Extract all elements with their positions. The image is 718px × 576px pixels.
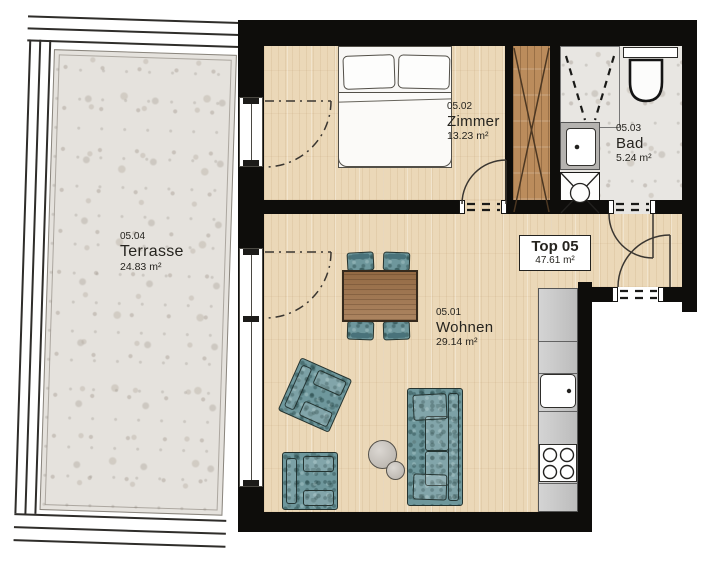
room-label-bad: 05.03 Bad 5.24 m² (616, 123, 652, 164)
room-name: Terrasse (120, 243, 184, 262)
room-code: 05.03 (616, 123, 652, 135)
room-name: Bad (616, 135, 652, 152)
room-area: 5.24 m² (616, 152, 652, 164)
terrace-door-swings (265, 101, 331, 318)
room-code: 05.01 (436, 307, 493, 319)
linework-overlay (0, 0, 718, 576)
shaft-brace (514, 48, 549, 212)
stove-burners (544, 449, 574, 479)
toilet (630, 60, 662, 101)
kitchen-sink-dot (567, 389, 571, 393)
room-name: Wohnen (436, 319, 493, 336)
room-area: 24.83 m² (120, 261, 184, 273)
room-name: Zimmer (447, 113, 500, 130)
shower-marking (566, 56, 614, 120)
room-label-wohnen: 05.01 Wohnen 29.14 m² (436, 307, 493, 348)
washing-machine-symbol (561, 173, 599, 213)
unit-label-box: Top 05 47.61 m² (519, 235, 591, 271)
room-code: 05.04 (120, 231, 184, 243)
floor-plan: 05.02 Zimmer 13.23 m² 05.03 Bad 5.24 m² … (0, 0, 718, 576)
room-code: 05.02 (447, 101, 500, 113)
room-label-terrasse: 05.04 Terrasse 24.83 m² (120, 231, 184, 273)
unit-area: 47.61 m² (520, 255, 590, 266)
room-area: 13.23 m² (447, 130, 500, 142)
room-label-zimmer: 05.02 Zimmer 13.23 m² (447, 101, 500, 142)
bath-sink-dot (575, 145, 580, 150)
unit-name: Top 05 (520, 238, 590, 255)
room-area: 29.14 m² (436, 336, 493, 348)
